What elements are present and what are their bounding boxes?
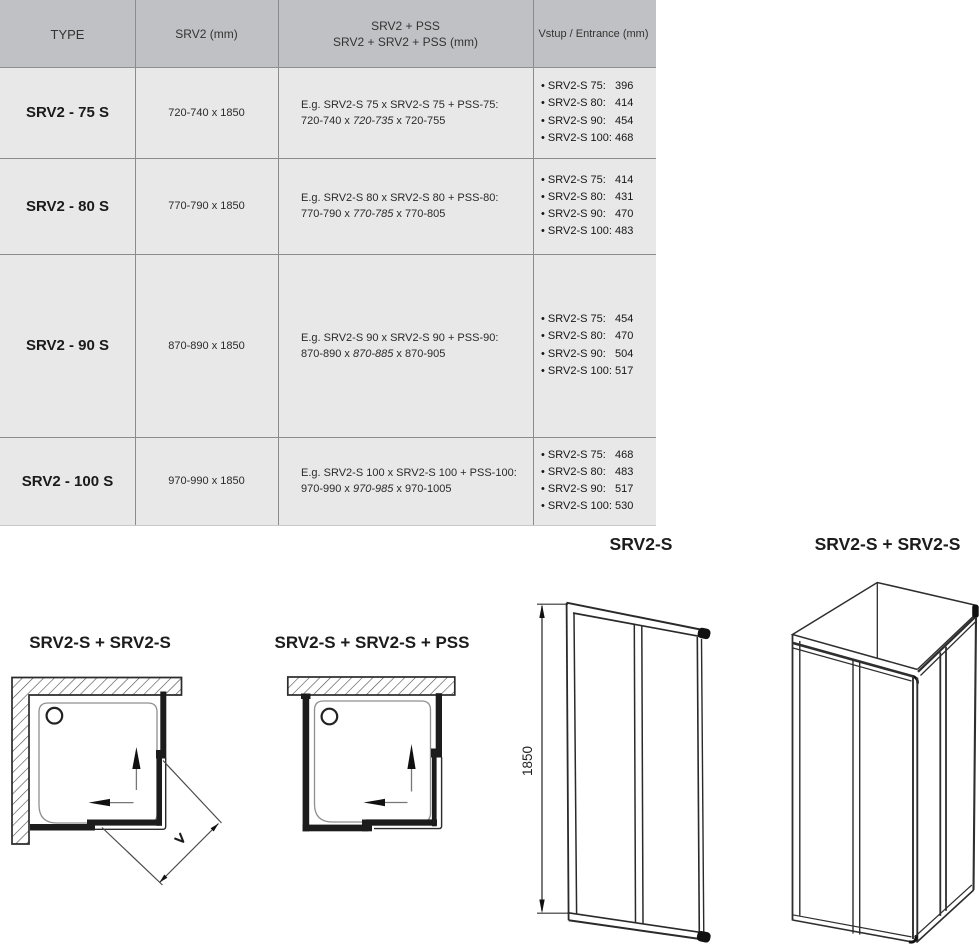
svg-text:SRV2-S + SRV2-S + PSS: SRV2-S + SRV2-S + PSS xyxy=(275,633,470,652)
svg-text:SRV2-S + SRV2-S: SRV2-S + SRV2-S xyxy=(815,534,961,554)
svg-text:1850: 1850 xyxy=(520,746,535,776)
svg-text:SRV2-S: SRV2-S xyxy=(610,534,673,554)
svg-text:SRV2-S + SRV2-S: SRV2-S + SRV2-S xyxy=(29,633,171,652)
